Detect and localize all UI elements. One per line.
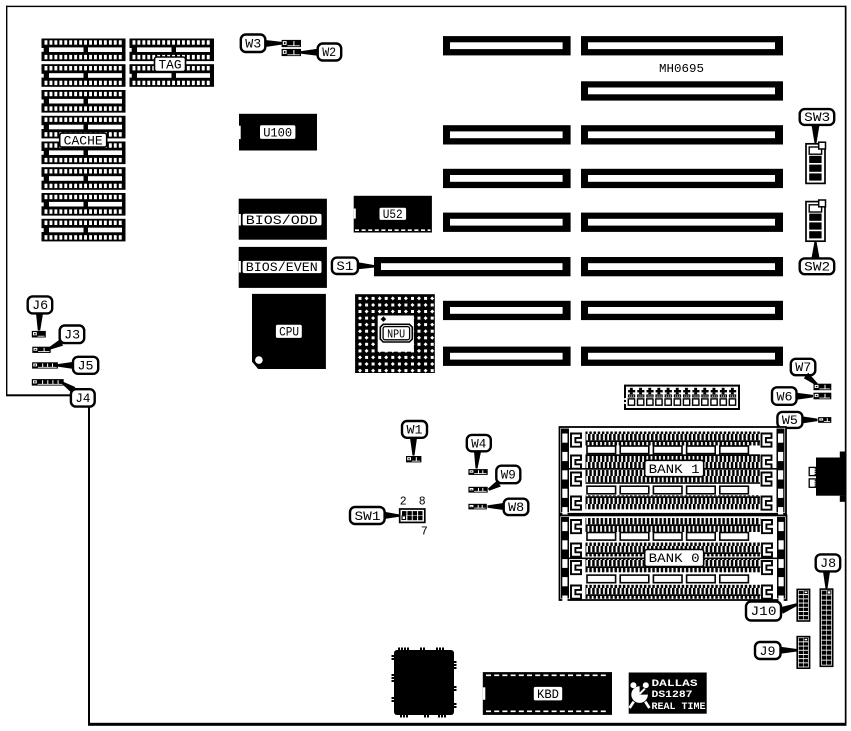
svg-text:J8: J8 [820, 557, 836, 571]
svg-text:SW3: SW3 [804, 111, 830, 125]
svg-text:KBD: KBD [537, 688, 559, 702]
svg-text:TAG: TAG [159, 59, 182, 73]
svg-text:8: 8 [419, 496, 426, 509]
svg-text:7: 7 [421, 526, 428, 539]
svg-text:W9: W9 [501, 469, 516, 483]
svg-text:2: 2 [400, 496, 407, 509]
svg-text:J6: J6 [32, 299, 48, 313]
svg-text:J4: J4 [75, 392, 90, 406]
svg-text:SW2: SW2 [804, 261, 830, 275]
svg-text:J5: J5 [78, 360, 94, 374]
svg-text:CPU: CPU [279, 326, 299, 340]
svg-text:DS1287: DS1287 [652, 689, 693, 701]
svg-text:W6: W6 [777, 390, 793, 404]
svg-text:W1: W1 [407, 424, 423, 438]
svg-text:W4: W4 [471, 437, 486, 451]
svg-text:SW1: SW1 [355, 510, 381, 524]
svg-text:J9: J9 [760, 645, 776, 659]
svg-text:U52: U52 [383, 208, 403, 222]
svg-text:CACHE: CACHE [64, 134, 103, 148]
svg-text:BIOS/ODD: BIOS/ODD [246, 214, 318, 228]
svg-text:REAL TIME: REAL TIME [652, 701, 706, 713]
svg-text:W7: W7 [795, 361, 811, 375]
svg-text:W2: W2 [322, 46, 336, 60]
svg-text:W8: W8 [508, 501, 524, 515]
svg-text:J3: J3 [64, 329, 80, 343]
svg-text:NPU: NPU [387, 327, 405, 341]
svg-text:MH0695: MH0695 [659, 63, 704, 76]
svg-text:W5: W5 [782, 414, 798, 428]
svg-text:U100: U100 [263, 126, 292, 140]
svg-text:J10: J10 [751, 605, 777, 619]
svg-text:W3: W3 [245, 38, 261, 52]
svg-text:BANK 1: BANK 1 [649, 463, 700, 477]
svg-text:BANK 0: BANK 0 [649, 552, 700, 566]
svg-text:S1: S1 [336, 260, 353, 274]
svg-text:BIOS/EVEN: BIOS/EVEN [246, 261, 318, 275]
